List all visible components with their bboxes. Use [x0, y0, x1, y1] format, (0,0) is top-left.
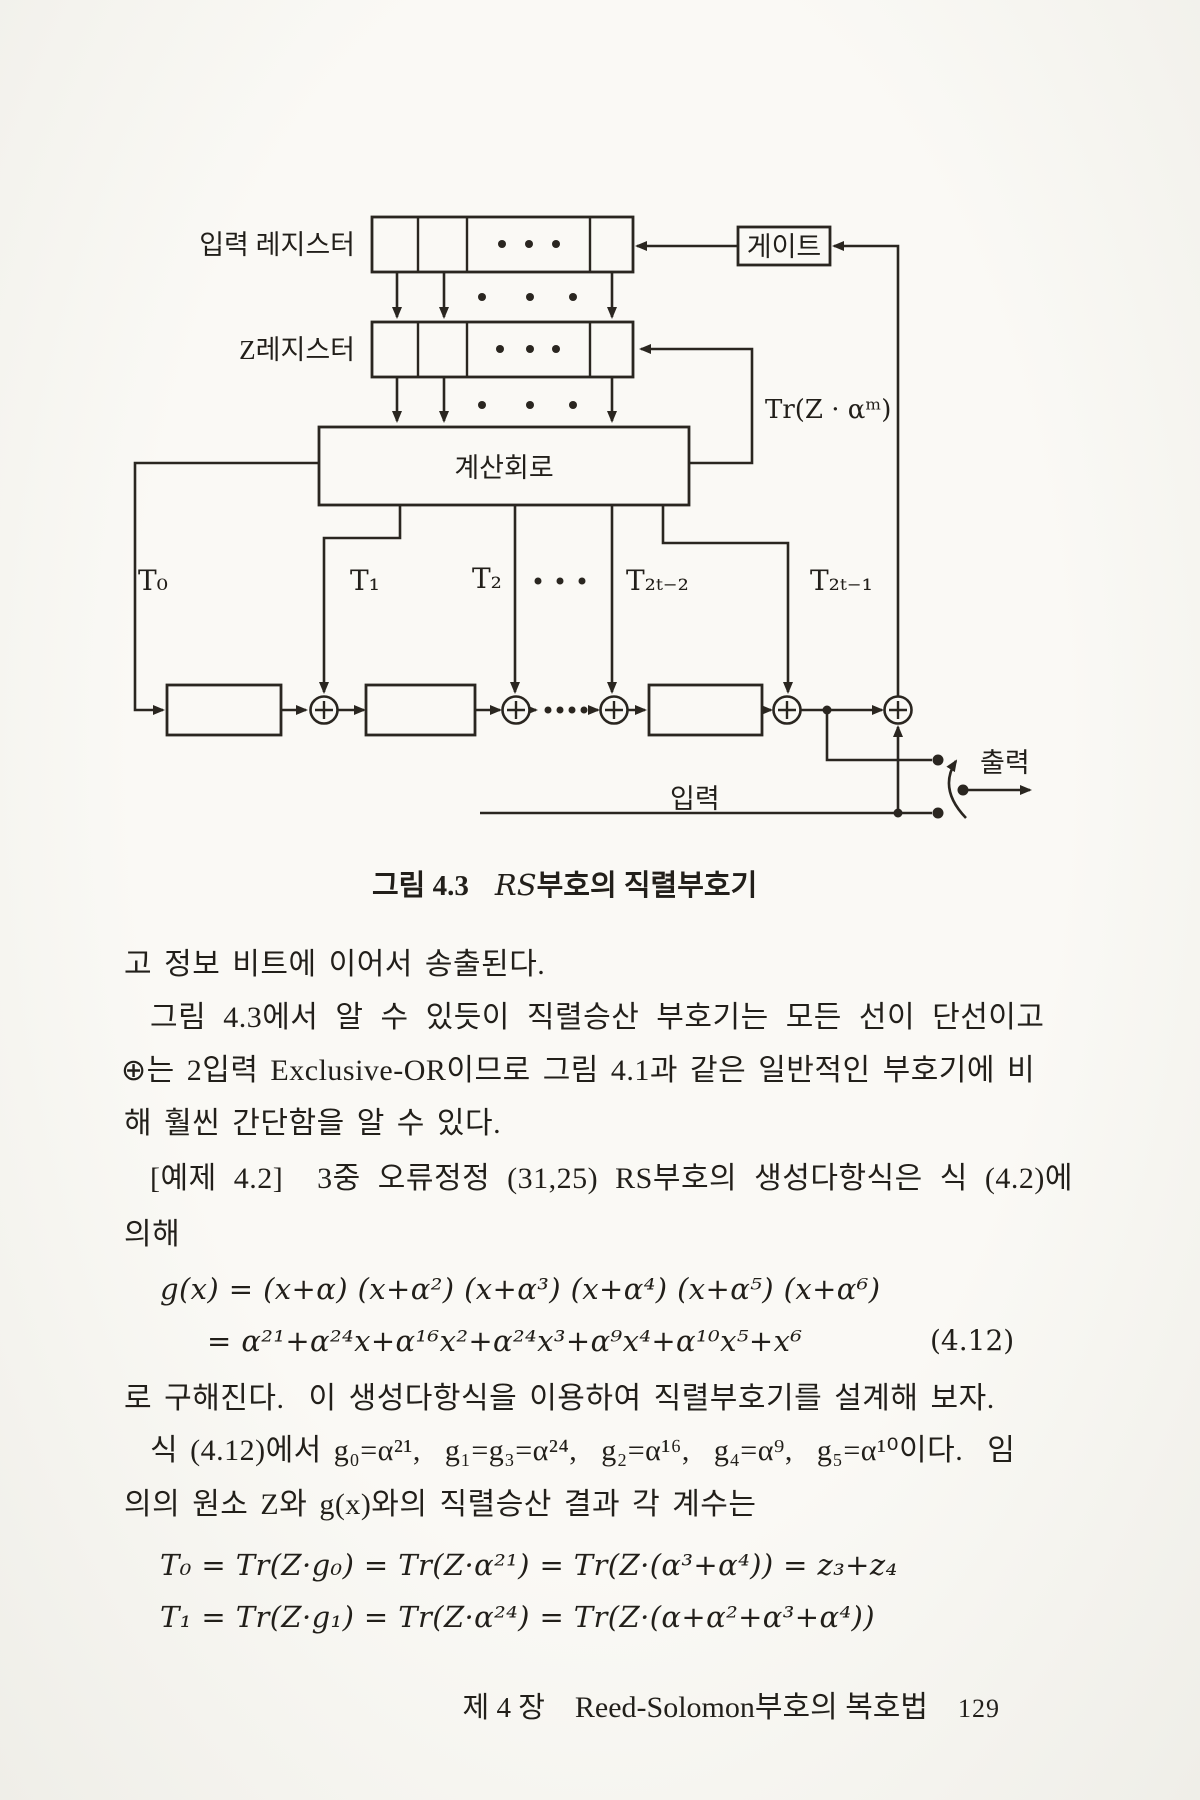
switch-lower-contact [933, 808, 944, 819]
parity-tap-wire [827, 710, 932, 760]
t2t-minus2-label: T₂ₜ₋₂ [626, 564, 689, 597]
gate-label: 게이트 [747, 232, 822, 262]
equation-number: (4.12) [930, 1324, 1014, 1357]
book-page: 입력 레지스터 Z레지스터 게이트 계산회로 Tr(Z · αᵐ) T₀ T₁ … [0, 0, 1200, 1800]
delay-box-1 [167, 685, 281, 735]
equation-g-x-expanded: = α²¹+α²⁴x+α¹⁶x²+α²⁴x³+α⁹x⁴+α¹⁰x⁵+x⁶ [207, 1324, 802, 1358]
t2t-minus1-wire [663, 505, 788, 692]
diagram-input-label: 입력 [670, 784, 720, 814]
body-line-7: 로 구해진다. 이 생성다항식을 이용하여 직렬부호기를 설계해 보자. [124, 1382, 995, 1417]
feedback-to-gate-wire [834, 246, 898, 697]
trace-label: Tr(Z · αᵐ) [765, 395, 891, 425]
delay-box-3 [649, 685, 762, 735]
body-line-6: 의해 [124, 1218, 180, 1253]
page-footer: 제 4 장 Reed-Solomon부호의 복호법 129 [463, 1682, 1000, 1726]
page-number: 129 [958, 1694, 1000, 1724]
t1-wire [324, 505, 400, 692]
chapter-title: Reed-Solomon부호의 복호법 [575, 1682, 928, 1726]
body-line-4: 해 훨씬 간단함을 알 수 있다. [124, 1107, 501, 1142]
body-line-2: 그림 4.3에서 알 수 있듯이 직렬승산 부호기는 모든 선이 단선이고 [150, 1001, 1045, 1036]
figure-title: RS부호의 직렬부호기 [495, 862, 757, 904]
equation-t1: T₁ = Tr(Z·g₁) = Tr(Z·α²⁴) = Tr(Z·(α+α²+α… [160, 1600, 875, 1634]
t1-label: T₁ [350, 564, 380, 597]
delay-box-2 [366, 685, 475, 735]
t0-label: T₀ [138, 564, 168, 597]
calc-circuit-label: 계산회로 [454, 453, 553, 483]
body-line-9: 의의 원소 Z와 g(x)와의 직렬승산 결과 각 계수는 [124, 1488, 757, 1523]
figure-number: 그림 4.3 [372, 862, 469, 904]
chapter-label: 제 4 장 [463, 1684, 545, 1726]
figure-caption: 그림 4.3 RS부호의 직렬부호기 [372, 862, 757, 904]
body-line-3: ⊕는 2입력 Exclusive-OR이므로 그림 4.1과 같은 일반적인 부… [121, 1054, 1035, 1089]
equation-g-x: g(x) = (x+α) (x+α²) (x+α³) (x+α⁴) (x+α⁵)… [160, 1272, 881, 1306]
t2-label: T₂ [472, 562, 502, 595]
t2t-minus1-label: T₂ₜ₋₁ [810, 564, 873, 597]
z-register-label: Z레지스터 [239, 335, 355, 365]
body-line-5: [예제 4.2] 3중 오류정정 (31,25) RS부호의 생성다항식은 식 … [150, 1162, 1073, 1197]
switch-pivot [958, 785, 969, 796]
body-line-8: 식 (4.12)에서 g₀=α²¹, g₁=g₃=α²⁴, g₂=α¹⁶, g₄… [150, 1434, 1015, 1469]
serial-encoder-diagram: 입력 레지스터 Z레지스터 게이트 계산회로 Tr(Z · αᵐ) T₀ T₁ … [0, 0, 1200, 900]
diagram-output-label: 출력 [980, 748, 1030, 778]
switch-upper-contact [933, 755, 944, 766]
input-register-label: 입력 레지스터 [199, 230, 355, 260]
body-line-1: 고 정보 비트에 이어서 송출된다. [124, 948, 545, 983]
equation-t0: T₀ = Tr(Z·g₀) = Tr(Z·α²¹) = Tr(Z·(α³+α⁴)… [160, 1548, 898, 1582]
